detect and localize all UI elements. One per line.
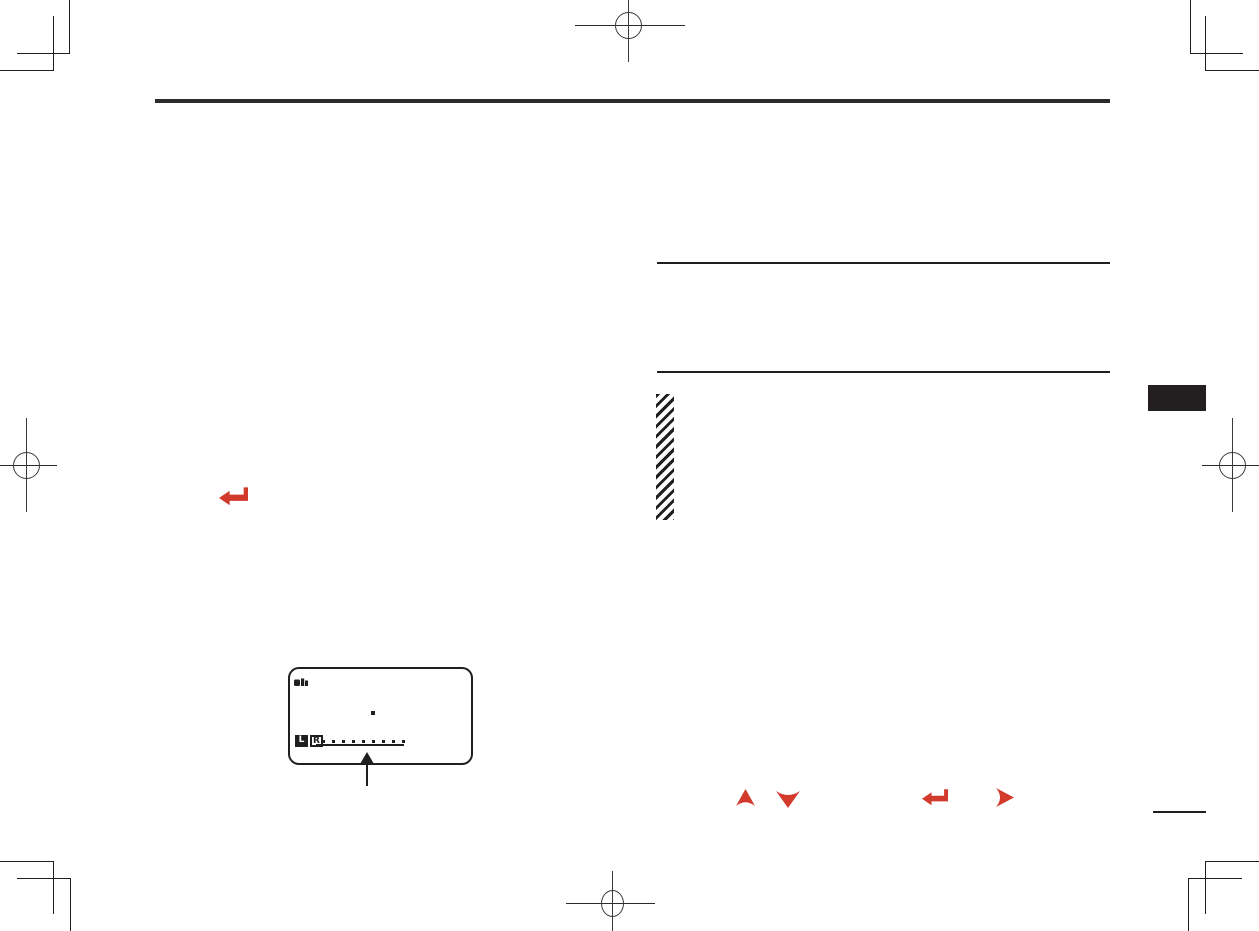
crop-line (17, 53, 70, 54)
section-rule-upper (657, 262, 1110, 264)
meter-dot (332, 740, 335, 743)
crop-line (1205, 861, 1206, 914)
crop-line (1190, 0, 1191, 53)
record-dot (371, 711, 375, 715)
left-channel-badge: L (295, 735, 308, 747)
crop-line (53, 861, 54, 914)
crop-line (17, 878, 71, 879)
manual-page: L R (0, 0, 1259, 931)
down-arrow-icon (776, 791, 800, 808)
meter-dot (402, 740, 405, 743)
callout-up-arrow-icon (360, 752, 374, 764)
enter-return-arrow-icon (219, 487, 248, 506)
section-rule-lower (657, 371, 1110, 373)
crop-line (53, 16, 54, 70)
meter-dot (352, 740, 355, 743)
meter-dot (382, 740, 385, 743)
crop-line (1205, 70, 1259, 71)
crop-line (69, 0, 70, 53)
meter-dot (372, 740, 375, 743)
crop-line (1205, 861, 1259, 862)
crop-line (1190, 53, 1243, 54)
meter-dot (362, 740, 365, 743)
cassette-status-icon (294, 672, 309, 681)
meter-dot (392, 740, 395, 743)
page-number-rule (1153, 811, 1206, 813)
crop-line (0, 70, 54, 71)
lcd-meter-dots (322, 740, 404, 743)
registration-circle (601, 890, 624, 917)
crop-line (1205, 16, 1206, 70)
registration-circle (13, 452, 40, 479)
level-meter-scale (316, 744, 404, 746)
registration-circle (615, 12, 642, 39)
crop-line (1188, 878, 1242, 879)
crop-line (70, 878, 71, 931)
meter-dot (342, 740, 345, 743)
up-arrow-icon (736, 789, 755, 807)
crop-line (1188, 878, 1189, 931)
registration-circle (1219, 452, 1246, 479)
note-hatched-bar (656, 394, 674, 520)
crop-line (0, 861, 54, 862)
page-title-rule (155, 99, 1110, 103)
enter-return-arrow-icon (922, 789, 948, 806)
lcd-screen-diagram: L R (288, 667, 473, 765)
chapter-tab-marker (1148, 385, 1206, 411)
right-arrow-icon (996, 788, 1014, 807)
meter-dot (322, 740, 325, 743)
